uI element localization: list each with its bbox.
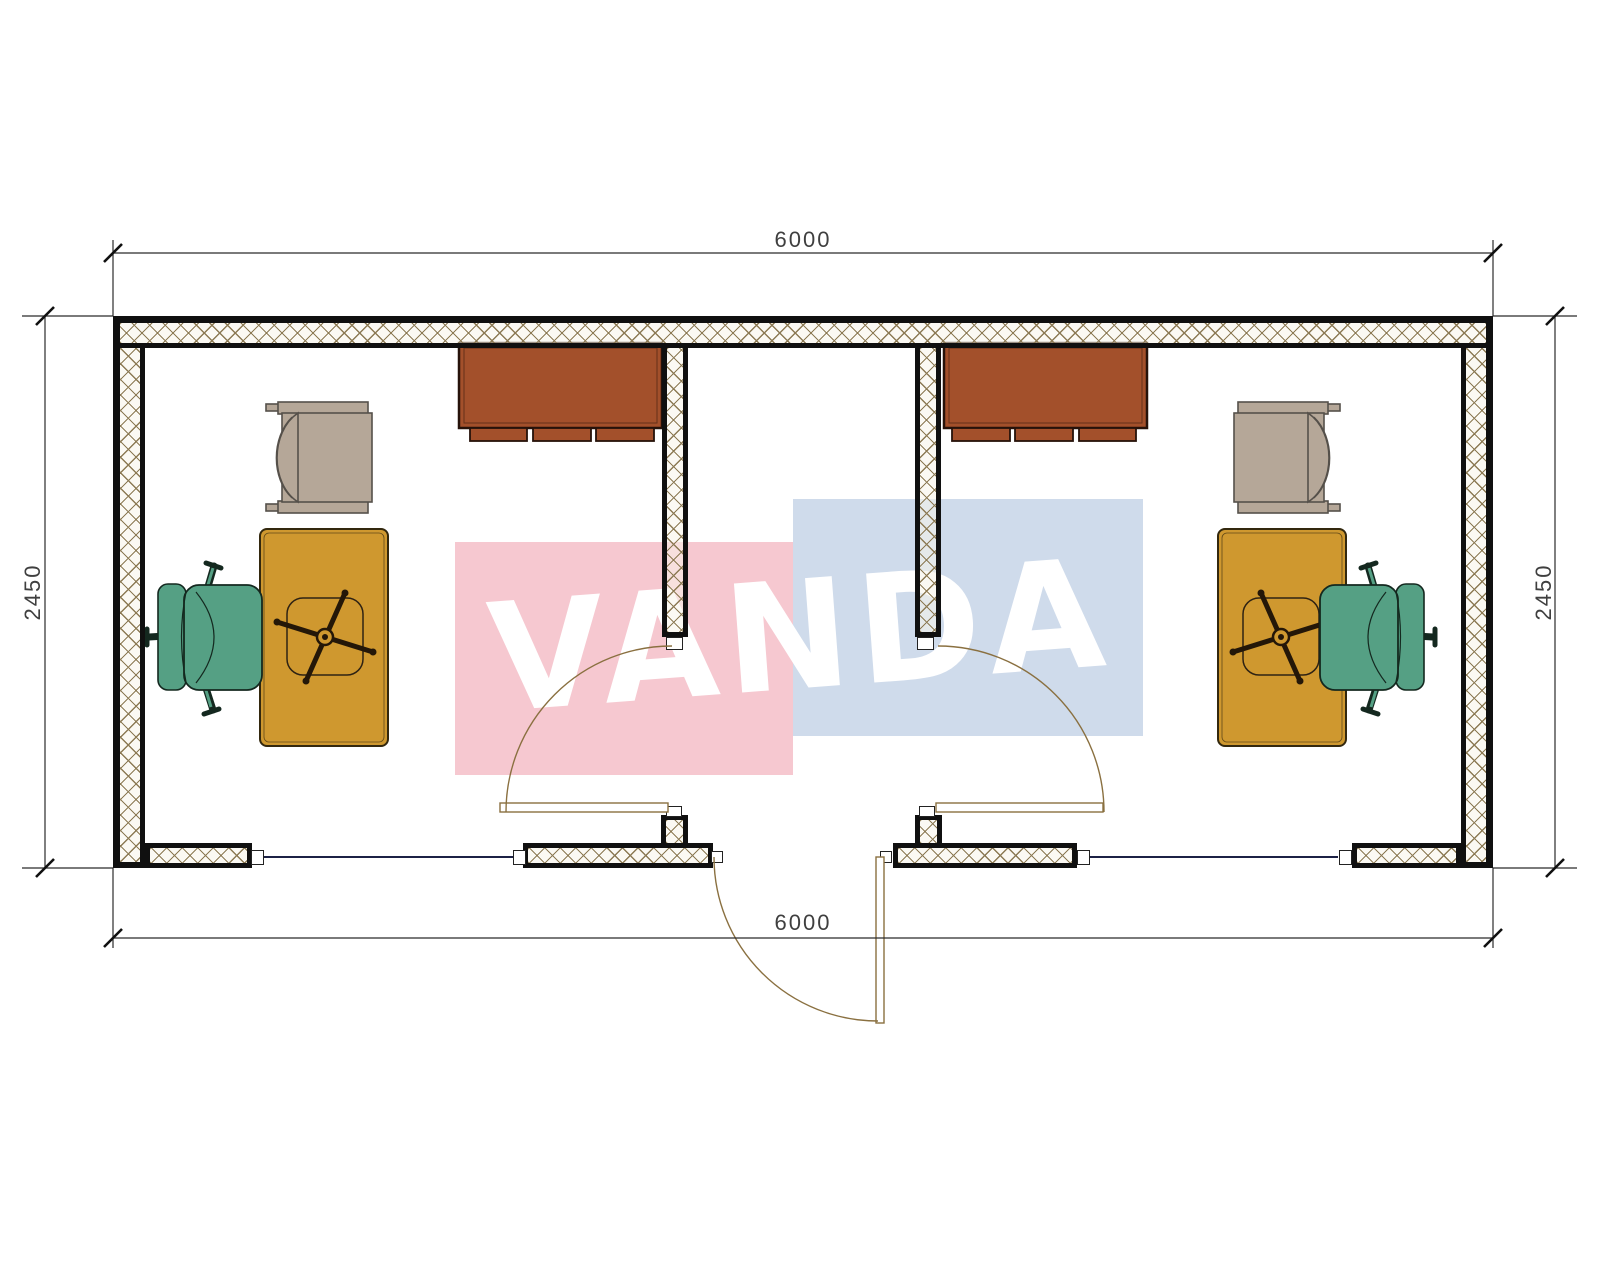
entrance-door-leaf: [876, 857, 884, 1023]
floor-plan-canvas: VANDA: [0, 0, 1600, 1280]
room-door-left-swing-arc: [506, 646, 672, 812]
room-door-right-leaf: [936, 803, 1103, 812]
dimension-label-bottom: 6000: [703, 911, 903, 935]
dimension-ticks: [36, 244, 1564, 947]
dimension-label-right: 2450: [1532, 522, 1556, 662]
room-door-right-swing-arc: [938, 646, 1104, 812]
dimension-label-top: 6000: [703, 228, 903, 252]
entrance-door-swing-arc: [714, 857, 878, 1021]
room-door-left-leaf: [500, 803, 668, 812]
linework-layer: [0, 0, 1600, 1280]
dimension-label-left: 2450: [21, 522, 45, 662]
dimension-lines: [22, 240, 1577, 948]
